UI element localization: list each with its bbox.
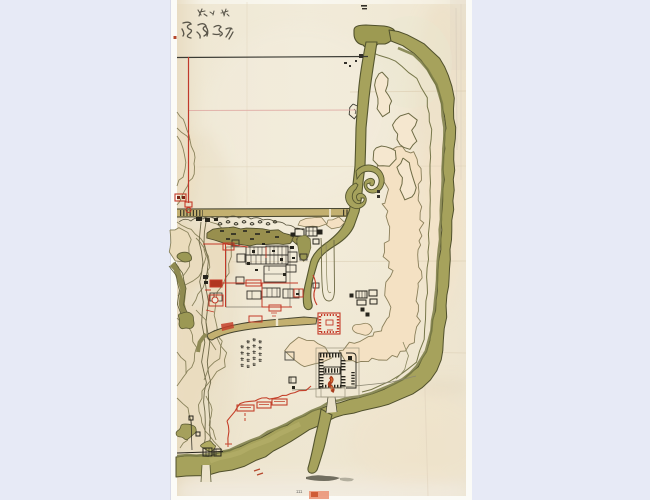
svg-text:111: 111: [296, 489, 303, 494]
